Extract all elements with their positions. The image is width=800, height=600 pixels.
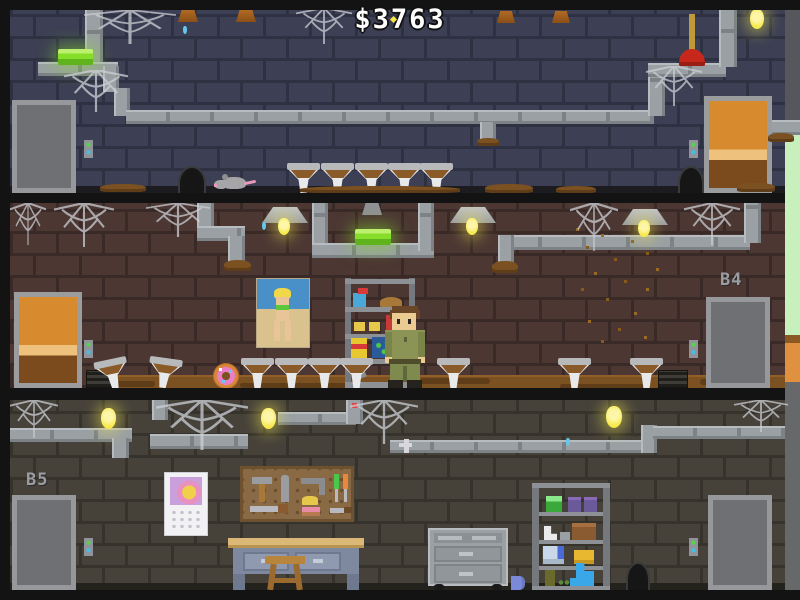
sponge[interactable] xyxy=(369,322,380,331)
screwdriver-shaft xyxy=(335,489,338,502)
hair xyxy=(416,310,420,319)
dirty-sink-tipped[interactable] xyxy=(146,356,183,390)
cobweb xyxy=(10,203,46,245)
purple-jar[interactable] xyxy=(568,497,581,512)
wooden-door[interactable] xyxy=(704,96,772,193)
saw-blade xyxy=(250,506,280,512)
elevator-call-panel[interactable] xyxy=(84,340,93,358)
pipe-dirt-leak xyxy=(492,261,518,273)
shoe xyxy=(407,380,422,388)
outside-dirt-strip xyxy=(785,343,800,382)
drawer-handle xyxy=(313,559,323,563)
game-viewport: B4 B5 xyxy=(0,0,800,600)
pipe-dirt-leak xyxy=(224,260,251,271)
lamp-bulb xyxy=(638,220,650,237)
pipe xyxy=(278,412,356,425)
outside-rock-strip-top xyxy=(785,10,800,130)
mouse-hole xyxy=(626,562,650,590)
screwdriver-orange xyxy=(343,474,348,489)
calendar-picture xyxy=(170,477,202,505)
cobweb xyxy=(146,203,210,237)
outside-soil-band xyxy=(785,335,800,343)
lamp-bulb xyxy=(466,218,478,235)
sponge[interactable] xyxy=(354,322,365,331)
janitor-character[interactable] xyxy=(383,306,427,388)
knife-handle xyxy=(344,507,352,513)
dirty-sink[interactable] xyxy=(437,358,470,388)
spray-bottle[interactable] xyxy=(353,293,366,307)
elevator-call-panel[interactable] xyxy=(689,340,698,358)
arm xyxy=(385,332,392,359)
eye xyxy=(397,319,400,324)
dirt-pile xyxy=(556,186,596,193)
dirt-pile xyxy=(100,184,146,192)
outside-grass-strip xyxy=(785,130,800,335)
dirty-sink[interactable] xyxy=(308,358,341,388)
elevator-call-panel[interactable] xyxy=(689,538,698,556)
green-can[interactable] xyxy=(546,496,562,512)
stool-crossbar xyxy=(272,578,298,583)
money-counter: $3763 xyxy=(300,4,500,35)
wrench xyxy=(281,475,289,502)
pipe xyxy=(719,10,737,67)
shelf-board xyxy=(539,512,603,516)
hammer-head xyxy=(252,477,272,484)
green-tube-lamp xyxy=(355,229,391,245)
cobweb xyxy=(10,400,58,438)
purple-jar[interactable] xyxy=(584,497,597,512)
shelf-board xyxy=(532,483,610,488)
dirt-pile xyxy=(737,183,775,192)
mouse-hole xyxy=(178,166,206,193)
cobweb xyxy=(84,10,176,44)
elevator-call-panel[interactable] xyxy=(84,538,93,556)
pipe xyxy=(390,440,647,453)
storage-shelf[interactable] xyxy=(532,483,539,590)
rat[interactable] xyxy=(214,172,256,192)
cardboard-box[interactable] xyxy=(572,523,596,540)
floor-label-b4: B4 xyxy=(720,270,742,290)
elevator-call-panel[interactable] xyxy=(689,140,698,158)
pipe xyxy=(498,235,514,263)
dirty-sink[interactable] xyxy=(241,358,274,388)
mug[interactable] xyxy=(511,576,525,590)
dirty-sink[interactable] xyxy=(558,358,591,388)
water-drip xyxy=(262,222,266,230)
spray-bottle-trigger xyxy=(358,288,368,294)
storage-shelf[interactable] xyxy=(603,483,610,590)
pipe-elbow xyxy=(112,438,129,458)
poster-figure-leg xyxy=(285,321,291,341)
beach-poster[interactable] xyxy=(256,278,310,348)
elevator-bottom-right[interactable] xyxy=(708,495,772,590)
floor-separator xyxy=(0,388,785,400)
hanging-bulb xyxy=(606,406,622,428)
arm xyxy=(418,332,425,359)
mouse-hole xyxy=(678,166,704,193)
donut[interactable] xyxy=(213,363,239,389)
cobweb xyxy=(646,66,702,106)
drawer-handle xyxy=(459,552,473,556)
screwdriver-shaft xyxy=(344,489,347,502)
wooden-door[interactable] xyxy=(14,292,82,388)
dirt-pile xyxy=(300,186,460,193)
face xyxy=(392,313,416,330)
shelf-board xyxy=(539,540,603,544)
cabinet-handle xyxy=(472,536,496,540)
hanging-bulb xyxy=(101,408,116,429)
elevator-bottom-left[interactable] xyxy=(12,495,76,590)
angle-square xyxy=(319,478,325,495)
floor-label-b5: B5 xyxy=(26,470,48,490)
floor-separator xyxy=(0,193,785,203)
workbench-leg xyxy=(233,574,245,590)
ground-shadow-bottom-floor xyxy=(10,583,785,590)
pipe xyxy=(126,110,654,124)
pipe xyxy=(418,203,434,251)
pipe-dirt-leak xyxy=(477,138,499,146)
cobweb xyxy=(350,400,418,444)
drawer-handle xyxy=(459,572,473,576)
small-green-bits xyxy=(558,580,570,585)
elevator-top-left[interactable] xyxy=(12,100,76,193)
rolling-cabinet[interactable] xyxy=(428,528,508,586)
poster-figure-leg xyxy=(274,321,280,341)
cobweb xyxy=(570,203,618,251)
dirty-sink[interactable] xyxy=(340,358,373,388)
dirty-sink[interactable] xyxy=(630,358,663,388)
pipe-dirt-leak xyxy=(768,133,794,142)
cleaner-bottle[interactable] xyxy=(351,338,367,358)
water-drip xyxy=(566,438,570,446)
hanging-bulb xyxy=(261,408,276,429)
calendar-grid xyxy=(170,509,203,532)
water-drip xyxy=(183,26,187,34)
frame-bottom xyxy=(0,590,800,600)
olive-bottle[interactable] xyxy=(545,570,555,586)
pipe xyxy=(228,236,245,262)
cobweb xyxy=(64,70,128,112)
plunger-handle[interactable] xyxy=(689,14,695,51)
workbench-leg xyxy=(347,574,359,590)
saw-handle xyxy=(278,504,288,513)
cobweb xyxy=(734,400,788,432)
poster-figure-bikini xyxy=(276,305,289,310)
elevator-call-panel[interactable] xyxy=(84,140,93,158)
pipe xyxy=(312,243,434,258)
gray-item[interactable] xyxy=(560,532,570,540)
yellow-box[interactable] xyxy=(574,550,594,564)
shoe xyxy=(388,380,403,388)
jacket-button xyxy=(404,337,407,342)
wall-calendar[interactable] xyxy=(164,472,208,536)
hammer-handle xyxy=(259,484,265,502)
dirty-sink[interactable] xyxy=(275,358,308,388)
pie-item xyxy=(302,507,320,516)
leg-gap xyxy=(403,366,407,381)
frame-left xyxy=(0,0,10,600)
pipe xyxy=(744,203,761,243)
cobweb xyxy=(156,400,248,450)
cobweb xyxy=(54,203,114,247)
shelf-board xyxy=(345,279,415,284)
lamp-bulb xyxy=(278,218,290,235)
cabinet-handle xyxy=(438,536,462,540)
photo-box[interactable] xyxy=(543,546,564,564)
eye xyxy=(408,319,411,324)
burger-item xyxy=(302,496,318,505)
workbench-top[interactable] xyxy=(228,538,364,548)
screwdriver-green xyxy=(334,474,339,489)
green-tube-lamp xyxy=(58,49,93,65)
dirt-pile xyxy=(485,184,533,193)
elevator-middle-right[interactable] xyxy=(706,297,770,388)
ceiling-bulb xyxy=(750,9,764,29)
cobweb xyxy=(684,203,740,245)
